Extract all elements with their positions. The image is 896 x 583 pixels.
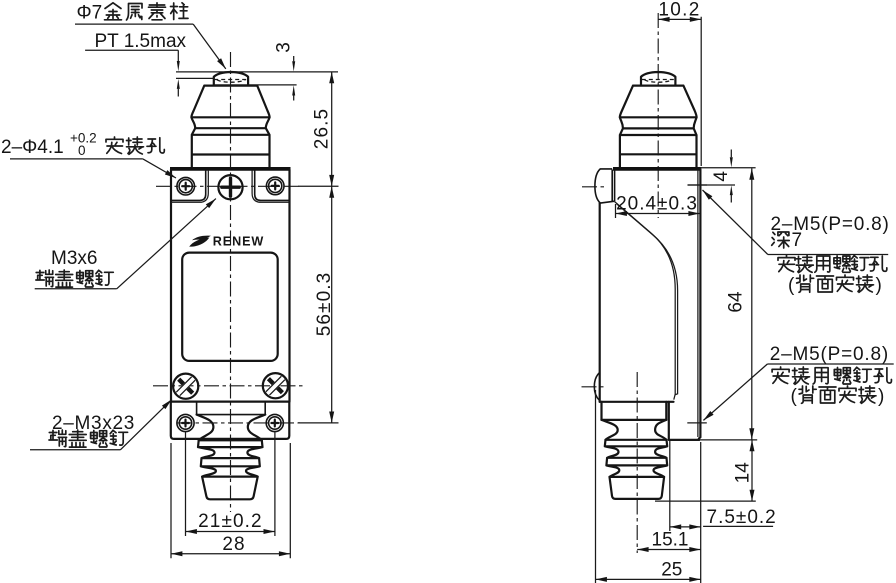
svg-text:14: 14: [733, 462, 754, 484]
svg-text:28: 28: [222, 534, 245, 555]
svg-text:7: 7: [792, 230, 803, 251]
svg-text:PT 1.5max: PT 1.5max: [95, 31, 187, 52]
svg-text:15.1: 15.1: [652, 529, 689, 550]
svg-text:(: (: [788, 275, 795, 296]
svg-text:10.2: 10.2: [658, 0, 700, 21]
svg-text:): ): [876, 275, 882, 296]
svg-text:21±0.2: 21±0.2: [198, 511, 263, 532]
svg-text:7.5±0.2: 7.5±0.2: [707, 507, 777, 528]
svg-text:Φ7: Φ7: [77, 3, 103, 24]
svg-text:25: 25: [661, 560, 682, 581]
svg-text:0: 0: [78, 143, 86, 158]
svg-text:20.4±0.3: 20.4±0.3: [616, 194, 698, 215]
svg-text:2–M5(P=0.8): 2–M5(P=0.8): [770, 344, 889, 365]
svg-text:26.5: 26.5: [312, 108, 333, 149]
svg-text:RENEW: RENEW: [213, 235, 264, 249]
svg-text:64: 64: [726, 291, 747, 313]
svg-text:(: (: [791, 386, 798, 407]
svg-text:4: 4: [711, 171, 732, 182]
svg-text:3: 3: [274, 42, 295, 53]
svg-text:2–Φ4.1: 2–Φ4.1: [1, 137, 64, 158]
svg-text:56±0.3: 56±0.3: [314, 272, 335, 337]
svg-text:M3x6: M3x6: [51, 248, 97, 269]
svg-text:): ): [878, 386, 884, 407]
